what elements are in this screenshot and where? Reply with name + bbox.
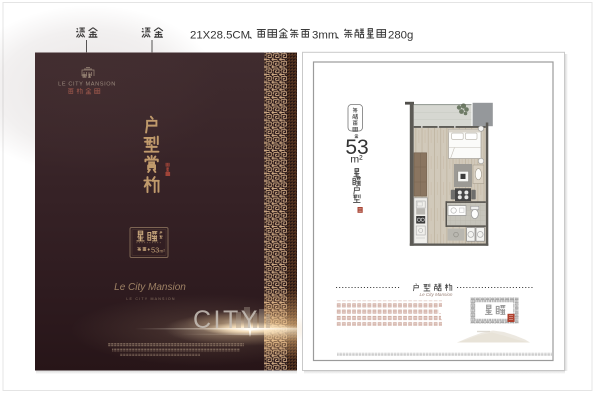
svg-text:21X28.5CM: 21X28.5CM <box>190 30 250 42</box>
svg-text:3mm: 3mm <box>312 30 337 42</box>
svg-text:280g: 280g <box>388 30 413 42</box>
svg-text:53: 53 <box>151 245 159 254</box>
svg-text:LE CITY MANSION: LE CITY MANSION <box>58 82 116 88</box>
svg-text:Le City Mansion: Le City Mansion <box>420 292 453 297</box>
svg-text:Le City Mansion: Le City Mansion <box>114 282 186 293</box>
svg-text:m²: m² <box>350 154 363 166</box>
svg-text:CITY: CITY <box>193 306 260 334</box>
svg-text:m²: m² <box>160 248 166 253</box>
